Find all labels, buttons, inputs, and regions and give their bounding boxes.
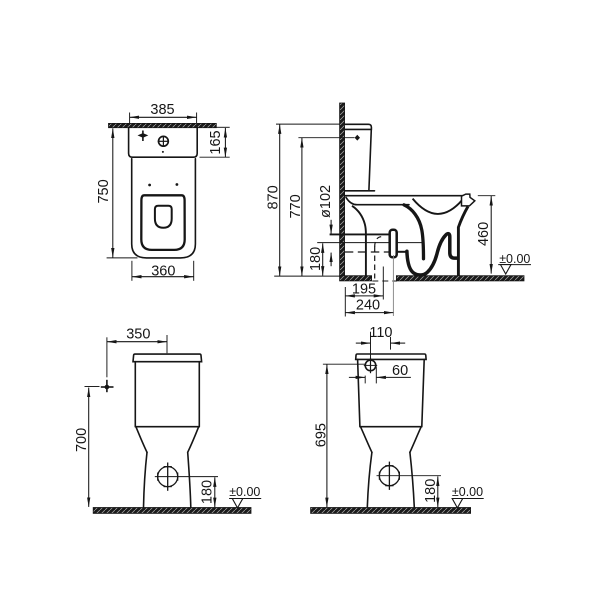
svg-text:±0.00: ±0.00 bbox=[452, 485, 483, 499]
svg-text:180: 180 bbox=[308, 247, 324, 271]
svg-text:770: 770 bbox=[288, 194, 304, 218]
svg-text:360: 360 bbox=[151, 263, 175, 279]
svg-text:700: 700 bbox=[74, 428, 90, 452]
svg-text:750: 750 bbox=[96, 179, 112, 203]
svg-text:460: 460 bbox=[476, 222, 492, 246]
svg-text:±0.00: ±0.00 bbox=[229, 485, 260, 499]
svg-text:110: 110 bbox=[369, 325, 392, 341]
svg-text:165: 165 bbox=[208, 130, 224, 154]
svg-text:870: 870 bbox=[265, 185, 281, 209]
svg-text:180: 180 bbox=[423, 479, 439, 503]
svg-text:180: 180 bbox=[200, 480, 216, 504]
svg-text:350: 350 bbox=[126, 327, 150, 343]
svg-text:60: 60 bbox=[392, 363, 408, 379]
svg-text:195: 195 bbox=[352, 281, 376, 297]
svg-text:695: 695 bbox=[314, 423, 330, 447]
svg-text:240: 240 bbox=[356, 298, 380, 314]
svg-text:ø102: ø102 bbox=[318, 185, 334, 218]
svg-text:385: 385 bbox=[150, 102, 174, 118]
